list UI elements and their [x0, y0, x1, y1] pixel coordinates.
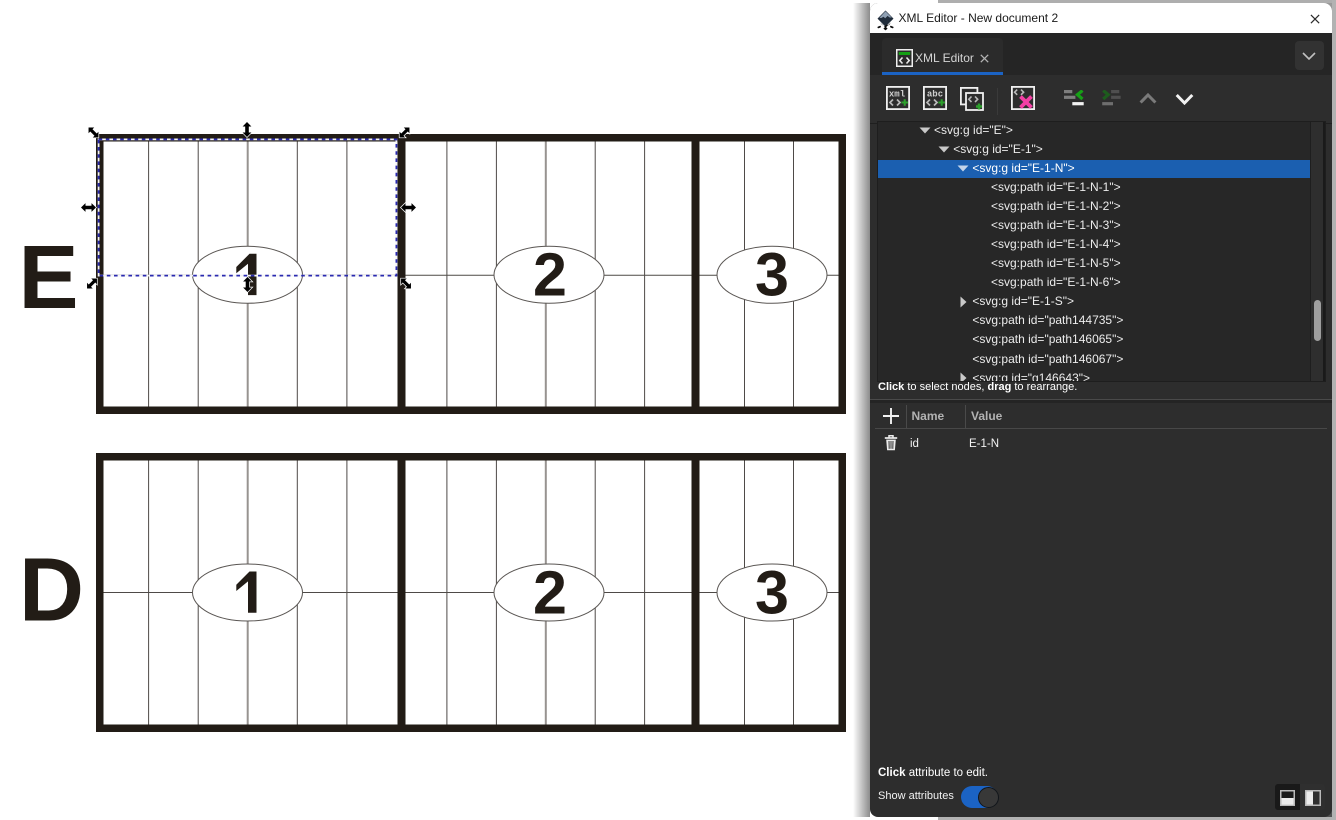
- svg-text:E: E: [19, 228, 79, 328]
- svg-text:3: 3: [755, 558, 789, 626]
- svg-text:2: 2: [533, 241, 567, 309]
- svg-text:abc: abc: [927, 90, 943, 100]
- svg-text:xml: xml: [889, 90, 906, 100]
- svg-text:3: 3: [755, 241, 789, 309]
- svg-text:D: D: [19, 541, 84, 641]
- svg-text:2: 2: [533, 558, 567, 626]
